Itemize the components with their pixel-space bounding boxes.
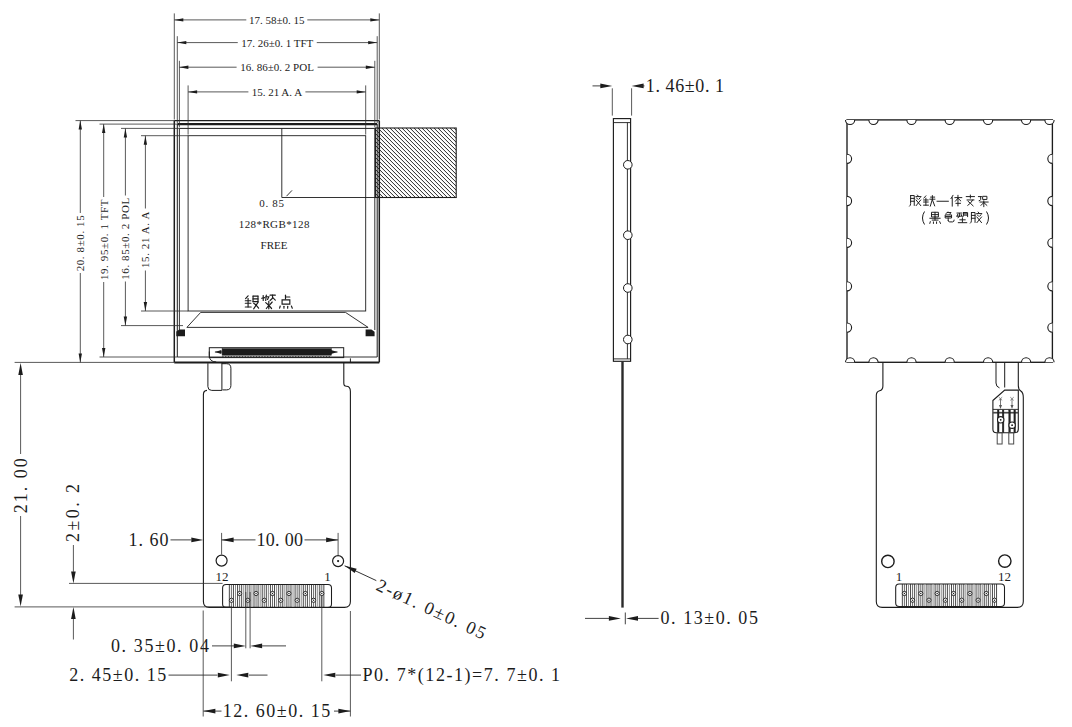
svg-text:0. 35±0. 04: 0. 35±0. 04	[111, 636, 210, 656]
svg-text:10. 00: 10. 00	[256, 530, 303, 550]
svg-text:2. 45±0. 15: 2. 45±0. 15	[69, 665, 167, 685]
svg-text:17. 26±0. 1 TFT: 17. 26±0. 1 TFT	[241, 37, 313, 49]
svg-text:12. 60±0. 15: 12. 60±0. 15	[223, 701, 332, 721]
svg-text:1. 60: 1. 60	[129, 530, 170, 550]
svg-text:16. 85±0. 2 POL: 16. 85±0. 2 POL	[119, 197, 131, 280]
svg-text:17. 58±0. 15: 17. 58±0. 15	[249, 14, 305, 26]
svg-text:0. 13±0. 05: 0. 13±0. 05	[661, 608, 760, 628]
svg-text:1: 1	[324, 569, 331, 584]
svg-text:12: 12	[216, 569, 229, 584]
svg-text:P0. 7*(12-1)=7. 7±0. 1: P0. 7*(12-1)=7. 7±0. 1	[363, 665, 562, 686]
svg-text:128*RGB*128: 128*RGB*128	[239, 218, 310, 230]
svg-text:0. 85: 0. 85	[259, 197, 285, 209]
svg-text:21. 00: 21. 00	[11, 456, 31, 513]
svg-text:2±0. 2: 2±0. 2	[63, 482, 83, 542]
svg-text:1: 1	[896, 569, 903, 584]
svg-text:1. 46±0. 1: 1. 46±0. 1	[646, 76, 725, 96]
svg-text:15. 21 A. A: 15. 21 A. A	[139, 211, 151, 268]
svg-text:12: 12	[998, 569, 1011, 584]
svg-text:19. 95±0. 1 TFT: 19. 95±0. 1 TFT	[98, 199, 110, 280]
svg-text:FREE: FREE	[261, 239, 288, 251]
svg-text:16. 86±0. 2 POL: 16. 86±0. 2 POL	[240, 61, 314, 73]
svg-text:20. 8±0. 15: 20. 8±0. 15	[74, 215, 86, 272]
svg-text:15. 21 A. A: 15. 21 A. A	[252, 86, 302, 98]
